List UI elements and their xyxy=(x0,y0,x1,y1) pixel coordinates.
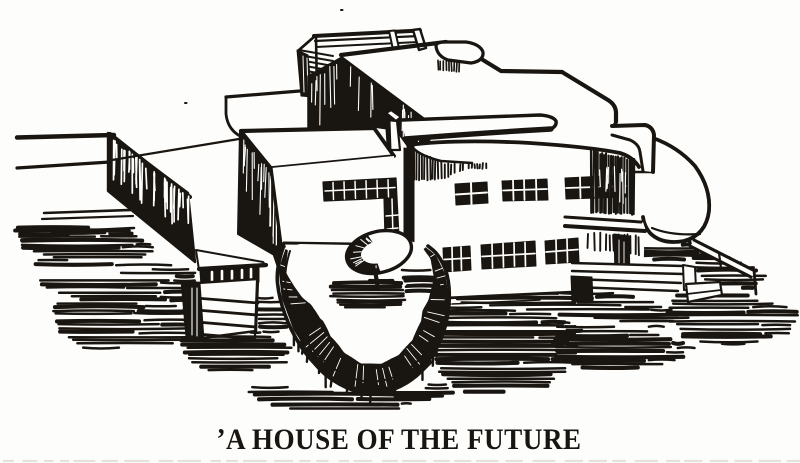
svg-text:ʼA HOUSE OF THE FUTURE: ʼA HOUSE OF THE FUTURE xyxy=(217,423,582,456)
